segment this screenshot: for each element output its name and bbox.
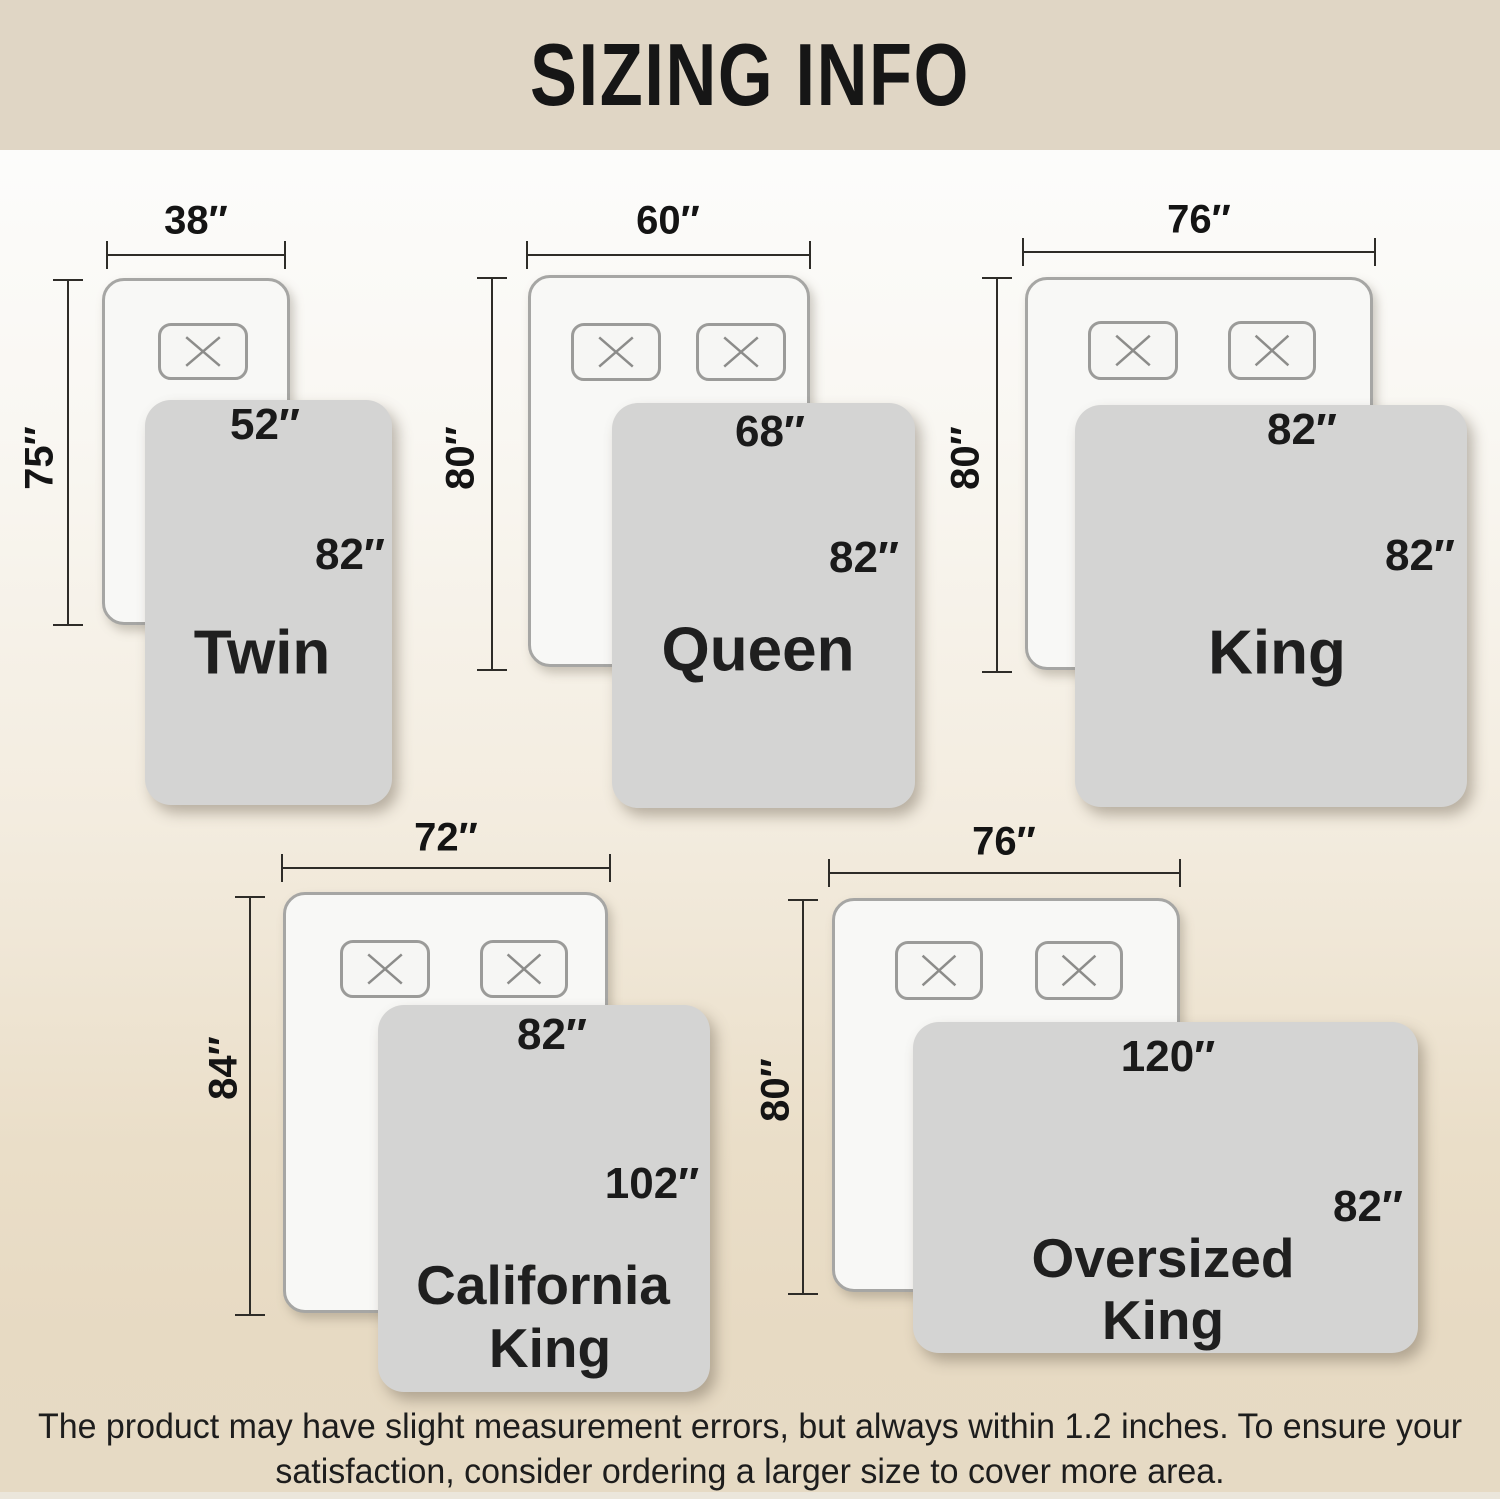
oversized-king-width-dimension-tick-1 [828, 859, 830, 887]
oversized-king-bed-width-label: 76″ [972, 820, 1036, 865]
king-length-dimension-tick-2 [982, 671, 1012, 673]
king-blanket: 82″82″King [1075, 405, 1467, 807]
pillow-cross-icon [161, 326, 245, 377]
california-king-pillow-1 [340, 940, 430, 998]
sizing-infographic: SIZING INFO 38″75″52″82″Twin60″80″68″82″… [0, 0, 1500, 1499]
king-width-dimension-tick-1 [1022, 238, 1024, 266]
oversized-king-name-line-1: Oversized [1032, 1226, 1295, 1290]
twin-blanket: 52″82″Twin [145, 400, 392, 805]
queen-length-dimension-line [491, 278, 493, 670]
king-blanket-width-label: 82″ [1267, 405, 1337, 455]
king-pillow-2 [1228, 321, 1316, 380]
pillow-cross-icon [483, 943, 565, 995]
queen-bed-width-label: 60″ [636, 199, 700, 244]
twin-width-dimension-tick-1 [106, 241, 108, 269]
king-bed-length-label: 80″ [944, 426, 989, 490]
king-name-line-1: King [1208, 618, 1346, 689]
california-king-name-line-1: California [416, 1253, 670, 1317]
oversized-king-length-dimension-line [802, 900, 804, 1294]
california-king-blanket-width-label: 82″ [517, 1010, 587, 1060]
twin-name-line-1: Twin [194, 618, 331, 689]
twin-bed-width-label: 38″ [164, 199, 228, 244]
disclaimer-line-1: The product may have slight measurement … [23, 1404, 1478, 1449]
twin-pillow-1 [158, 323, 248, 380]
california-king-length-dimension-tick-1 [235, 896, 265, 898]
california-king-width-dimension-tick-1 [281, 854, 283, 882]
pillow-cross-icon [1038, 944, 1120, 997]
oversized-king-blanket-width-label: 120″ [1121, 1032, 1216, 1082]
california-king-length-dimension-tick-2 [235, 1314, 265, 1316]
twin-blanket-width-label: 52″ [230, 400, 300, 450]
oversized-king-width-dimension-line [829, 872, 1180, 874]
king-length-dimension-tick-1 [982, 277, 1012, 279]
oversized-king-width-dimension-tick-2 [1179, 859, 1181, 887]
king-bed-width-label: 76″ [1167, 198, 1231, 243]
twin-blanket-length-label: 82″ [315, 530, 385, 580]
california-king-bed-width-label: 72″ [414, 816, 478, 861]
queen-name-line-1: Queen [662, 615, 855, 686]
california-king-pillow-2 [480, 940, 568, 998]
california-king-width-dimension-tick-2 [609, 854, 611, 882]
pillow-cross-icon [1231, 324, 1313, 377]
queen-width-dimension-tick-1 [526, 241, 528, 269]
disclaimer-text: The product may have slight measurement … [23, 1404, 1478, 1494]
california-king-blanket: 82″102″CaliforniaKing [378, 1005, 710, 1392]
twin-length-dimension-tick-1 [53, 279, 83, 281]
twin-length-dimension-tick-2 [53, 624, 83, 626]
oversized-king-blanket-length-label: 82″ [1333, 1182, 1403, 1232]
header-band: SIZING INFO [0, 0, 1500, 150]
oversized-king-bed-length-label: 80″ [754, 1058, 799, 1122]
queen-blanket-width-label: 68″ [735, 407, 805, 457]
california-king-bed-length-label: 84″ [202, 1036, 247, 1100]
queen-blanket: 68″82″Queen [612, 403, 915, 808]
pillow-cross-icon [574, 326, 658, 378]
twin-bed-length-label: 75″ [18, 426, 63, 490]
oversized-king-length-dimension-tick-1 [788, 899, 818, 901]
queen-length-dimension-tick-2 [477, 669, 507, 671]
california-king-width-dimension-line [282, 867, 610, 869]
oversized-king-length-dimension-tick-2 [788, 1293, 818, 1295]
california-king-name-line-2: King [489, 1316, 611, 1380]
disclaimer-line-2: satisfaction, consider ordering a larger… [23, 1449, 1478, 1494]
oversized-king-name-line-2: King [1102, 1288, 1224, 1352]
twin-width-dimension-line [107, 254, 285, 256]
queen-pillow-1 [571, 323, 661, 381]
king-length-dimension-line [996, 278, 998, 672]
queen-blanket-length-label: 82″ [829, 533, 899, 583]
king-width-dimension-line [1023, 251, 1375, 253]
queen-width-dimension-tick-2 [809, 241, 811, 269]
pillow-cross-icon [1091, 324, 1175, 377]
twin-width-dimension-tick-2 [284, 241, 286, 269]
queen-length-dimension-tick-1 [477, 277, 507, 279]
bottom-edge-strip [0, 1492, 1500, 1499]
king-width-dimension-tick-2 [1374, 238, 1376, 266]
oversized-king-blanket: 120″82″OversizedKing [913, 1022, 1418, 1353]
oversized-king-pillow-1 [895, 941, 983, 1000]
king-blanket-length-label: 82″ [1385, 531, 1455, 581]
oversized-king-pillow-2 [1035, 941, 1123, 1000]
california-king-blanket-length-label: 102″ [605, 1159, 700, 1209]
king-pillow-1 [1088, 321, 1178, 380]
queen-width-dimension-line [527, 254, 810, 256]
queen-pillow-2 [696, 323, 786, 381]
pillow-cross-icon [898, 944, 980, 997]
twin-length-dimension-line [67, 280, 69, 625]
pillow-cross-icon [343, 943, 427, 995]
california-king-length-dimension-line [249, 897, 251, 1315]
queen-bed-length-label: 80″ [439, 426, 484, 490]
pillow-cross-icon [699, 326, 783, 378]
page-title: SIZING INFO [530, 24, 970, 126]
